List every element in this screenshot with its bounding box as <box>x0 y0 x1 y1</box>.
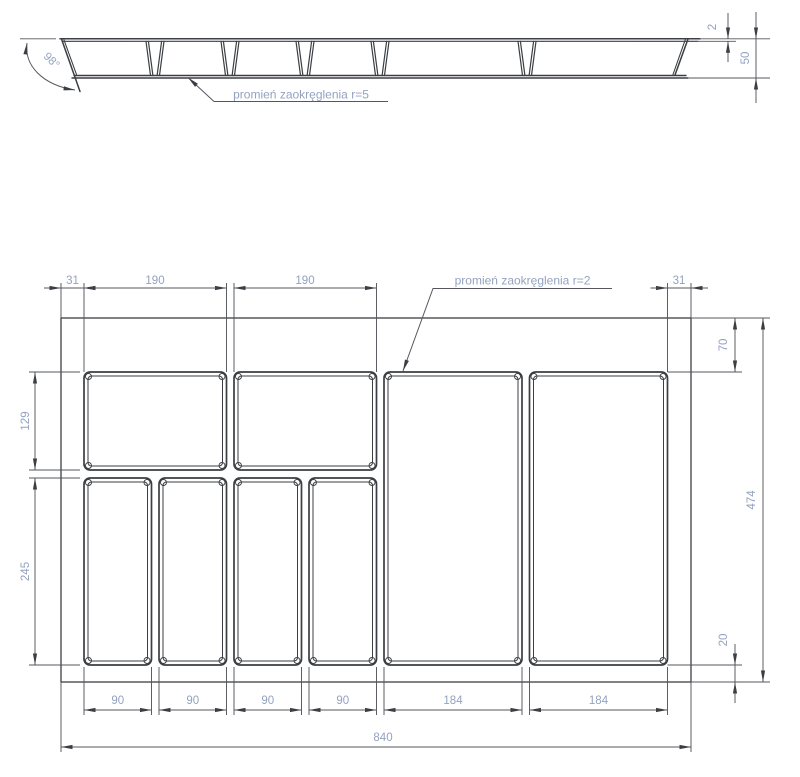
dim-label-bottom-c1: 90 <box>111 695 124 707</box>
dim-label-row2-height: 245 <box>20 562 32 581</box>
radius-note-r2: promień zaokręglenia r=2 <box>455 274 591 288</box>
section-profile-line <box>675 39 688 75</box>
section-divider <box>221 41 226 75</box>
compartment-outer-wall <box>84 478 152 665</box>
compartment-outer-wall <box>159 478 227 665</box>
compartment-inner-wall <box>313 482 373 661</box>
section-dimensions: 98° 2 50 promień zaokręglenia r=5 <box>20 12 770 103</box>
dim-label-bottom-offset: 20 <box>718 634 730 647</box>
section-divider <box>157 41 162 75</box>
compartment-inner-wall <box>388 376 518 661</box>
section-divider <box>520 41 525 75</box>
dim-label-margin-right: 31 <box>673 275 686 287</box>
compartment-inner-wall <box>163 482 223 661</box>
compartment <box>530 372 668 665</box>
section-divider <box>160 41 165 75</box>
plan-dimensions: 31 190 190 31 129 245 70 474 20 90 90 90… <box>20 274 770 753</box>
cutlery-tray-drawing: 98° 2 50 promień zaokręglenia r=5 31 190… <box>0 0 800 777</box>
radius-note-leader-r2 <box>403 289 612 372</box>
compartment-outer-wall <box>309 478 377 665</box>
compartment-outer-wall <box>234 478 302 665</box>
dim-label-top-comp1: 190 <box>145 275 164 287</box>
dim-label-bottom-c5: 184 <box>443 695 463 707</box>
rim-thickness-label: 2 <box>707 24 719 30</box>
section-profile-line <box>62 39 81 92</box>
section-divider <box>518 41 523 75</box>
compartment-inner-wall <box>88 376 223 466</box>
section-divider <box>296 41 301 75</box>
dim-label-bottom-c4: 90 <box>336 695 349 707</box>
compartment-inner-wall <box>88 482 148 661</box>
dim-label-total-width: 840 <box>373 732 392 744</box>
compartment-outer-wall <box>384 372 522 665</box>
plan-view <box>61 318 691 682</box>
dim-label-top-offset: 70 <box>718 339 730 352</box>
compartment-outer-wall <box>84 372 227 470</box>
compartment <box>309 478 377 665</box>
dim-label-top-comp2: 190 <box>295 275 314 287</box>
section-divider <box>310 41 315 75</box>
section-divider <box>298 41 303 75</box>
section-divider <box>529 41 534 75</box>
section-divider <box>223 41 228 75</box>
dim-label-total-height: 474 <box>746 490 758 510</box>
section-divider <box>382 41 387 75</box>
section-divider <box>146 41 151 75</box>
compartment-outer-wall <box>234 372 377 470</box>
dim-label-bottom-c2: 90 <box>186 695 199 707</box>
section-divider <box>373 41 378 75</box>
angle-dimension-label: 98° <box>41 50 62 71</box>
dim-label-bottom-c6: 184 <box>589 695 609 707</box>
dim-label-margin-left: 31 <box>66 275 79 287</box>
compartment-inner-wall <box>238 376 373 466</box>
compartment <box>159 478 227 665</box>
section-profile-line <box>64 40 77 75</box>
dim-label-bottom-c3: 90 <box>261 695 274 707</box>
compartment <box>234 372 377 470</box>
section-divider <box>232 41 237 75</box>
section-divider <box>148 41 153 75</box>
section-divider <box>307 41 312 75</box>
section-divider <box>371 41 376 75</box>
section-divider <box>235 41 240 75</box>
compartment-outer-wall <box>530 372 668 665</box>
section-divider <box>532 41 537 75</box>
compartment-inner-wall <box>238 482 298 661</box>
compartment <box>384 372 522 665</box>
section-divider <box>385 41 390 75</box>
dim-label-row1-height: 129 <box>20 411 32 430</box>
technical-drawing-page: 98° 2 50 promień zaokręglenia r=5 31 190… <box>0 0 800 777</box>
compartment <box>84 478 152 665</box>
section-height-label: 50 <box>740 52 752 65</box>
compartment-inner-wall <box>534 376 664 661</box>
compartment <box>84 372 227 470</box>
section-view <box>60 39 700 92</box>
radius-note-r5: promień zaokręglenia r=5 <box>233 88 369 102</box>
section-profile-line <box>673 39 686 75</box>
compartment <box>234 478 302 665</box>
